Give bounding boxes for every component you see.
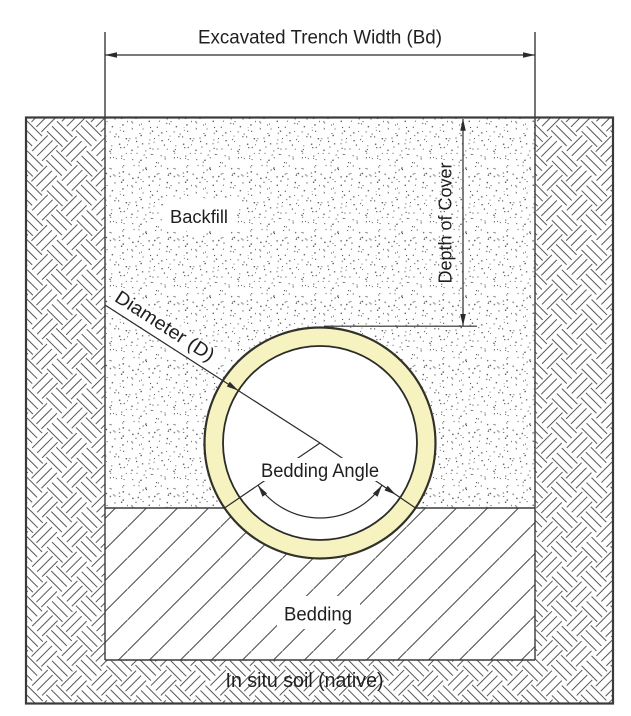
- svg-text:Bedding: Bedding: [284, 605, 352, 626]
- svg-text:Depth of Cover: Depth of Cover: [436, 162, 456, 283]
- svg-text:Backfill: Backfill: [170, 207, 228, 227]
- svg-text:Excavated Trench Width (Bd): Excavated Trench Width (Bd): [198, 28, 442, 49]
- svg-text:Bedding Angle: Bedding Angle: [261, 461, 379, 482]
- svg-text:In situ soil (native): In situ soil (native): [226, 669, 384, 692]
